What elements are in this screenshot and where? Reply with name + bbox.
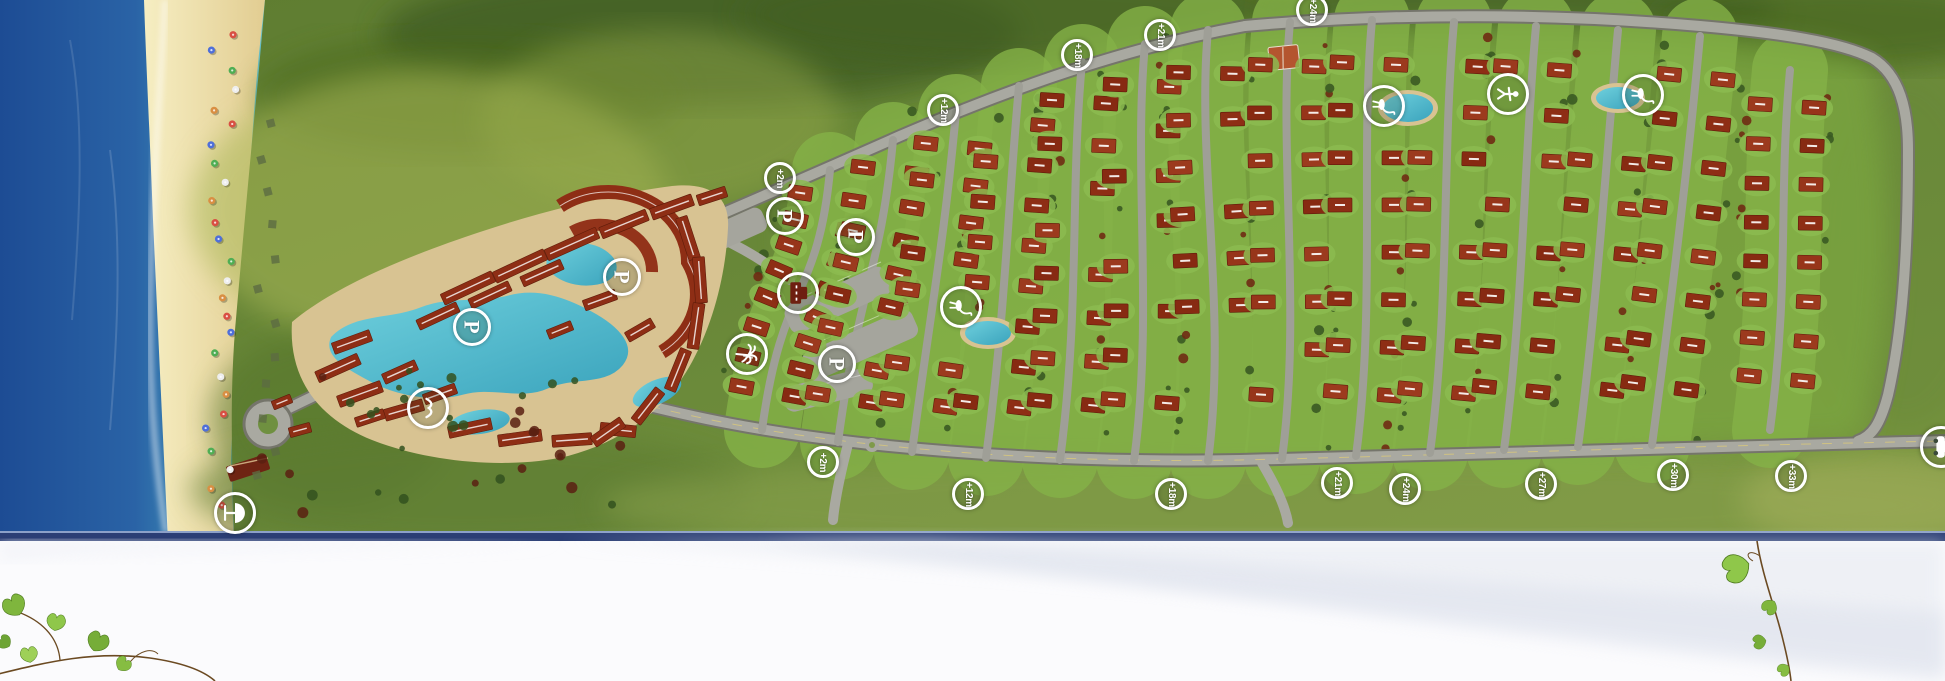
elevation-label: +21m bbox=[1155, 23, 1166, 48]
playground-figure-icon bbox=[1498, 88, 1518, 100]
elevation-marker[interactable]: +24m bbox=[1389, 473, 1421, 505]
amenity-marker-palm-tree[interactable] bbox=[726, 333, 768, 375]
elevation-label: +30m bbox=[1668, 463, 1679, 488]
elevation-marker[interactable]: +2m bbox=[764, 162, 796, 194]
elevation-marker[interactable]: +30m bbox=[1657, 459, 1689, 491]
elevation-marker[interactable]: +21m bbox=[1321, 467, 1353, 499]
elevation-marker[interactable]: +12m bbox=[952, 478, 984, 510]
parking-label: P bbox=[459, 320, 485, 333]
elevation-marker[interactable]: +24m bbox=[1296, 0, 1328, 26]
parking-marker[interactable]: P bbox=[603, 258, 641, 296]
elevation-label: +12m bbox=[938, 98, 949, 123]
parking-label: P bbox=[772, 209, 798, 222]
entrance-car-icon bbox=[1934, 436, 1945, 457]
parking-label: P bbox=[843, 230, 869, 243]
beach-umbrella-icon bbox=[225, 503, 245, 523]
elevation-label: +18m bbox=[1072, 43, 1083, 68]
elevation-label: +33m bbox=[1786, 464, 1797, 489]
palm-tree-icon bbox=[736, 345, 756, 363]
map-markers-layer: +2m+12m+18m+21m+24m+2m+12m+18m+21m+24m+2… bbox=[0, 0, 1945, 681]
hotel-icon bbox=[790, 282, 807, 303]
parking-marker[interactable]: P bbox=[818, 345, 856, 383]
elevation-label: +24m bbox=[1400, 477, 1411, 502]
elevation-marker[interactable]: +2m bbox=[807, 446, 839, 478]
amenity-marker-playground-figure[interactable] bbox=[1487, 73, 1529, 115]
parking-marker[interactable]: P bbox=[837, 218, 875, 256]
resort-masterplan-screenshot: +2m+12m+18m+21m+24m+2m+12m+18m+21m+24m+2… bbox=[0, 0, 1945, 681]
amenity-marker-seagull[interactable] bbox=[407, 387, 449, 429]
elevation-label: +24m bbox=[1307, 0, 1318, 22]
seagull-icon bbox=[426, 399, 431, 417]
elevation-label: +2m bbox=[818, 452, 829, 471]
parking-label: P bbox=[824, 357, 850, 370]
elevation-marker[interactable]: +18m bbox=[1061, 39, 1093, 71]
elevation-marker[interactable]: +33m bbox=[1775, 460, 1807, 492]
amenity-marker-water-bird[interactable] bbox=[1363, 85, 1405, 127]
elevation-label: +12m bbox=[963, 482, 974, 507]
amenity-marker-hotel-building[interactable] bbox=[777, 272, 819, 314]
elevation-marker[interactable]: +27m bbox=[1525, 468, 1557, 500]
elevation-marker[interactable]: +12m bbox=[927, 94, 959, 126]
water-bird-icon bbox=[1632, 88, 1653, 103]
parking-marker[interactable]: P bbox=[453, 308, 491, 346]
amenity-marker-beach-umbrella[interactable] bbox=[214, 492, 256, 534]
amenity-marker-water-bird[interactable] bbox=[940, 286, 982, 328]
parking-marker[interactable]: P bbox=[766, 197, 804, 235]
amenity-marker-entrance-car[interactable] bbox=[1920, 426, 1945, 468]
water-bird-icon bbox=[950, 300, 971, 315]
elevation-label: +2m bbox=[775, 168, 786, 187]
elevation-marker[interactable]: +21m bbox=[1144, 19, 1176, 51]
elevation-marker[interactable]: +18m bbox=[1155, 478, 1187, 510]
parking-label: P bbox=[609, 270, 635, 283]
amenity-marker-water-bird[interactable] bbox=[1622, 74, 1664, 116]
elevation-label: +21m bbox=[1332, 471, 1343, 496]
elevation-label: +18m bbox=[1166, 482, 1177, 507]
elevation-label: +27m bbox=[1536, 472, 1547, 497]
water-bird-icon bbox=[1373, 99, 1394, 114]
